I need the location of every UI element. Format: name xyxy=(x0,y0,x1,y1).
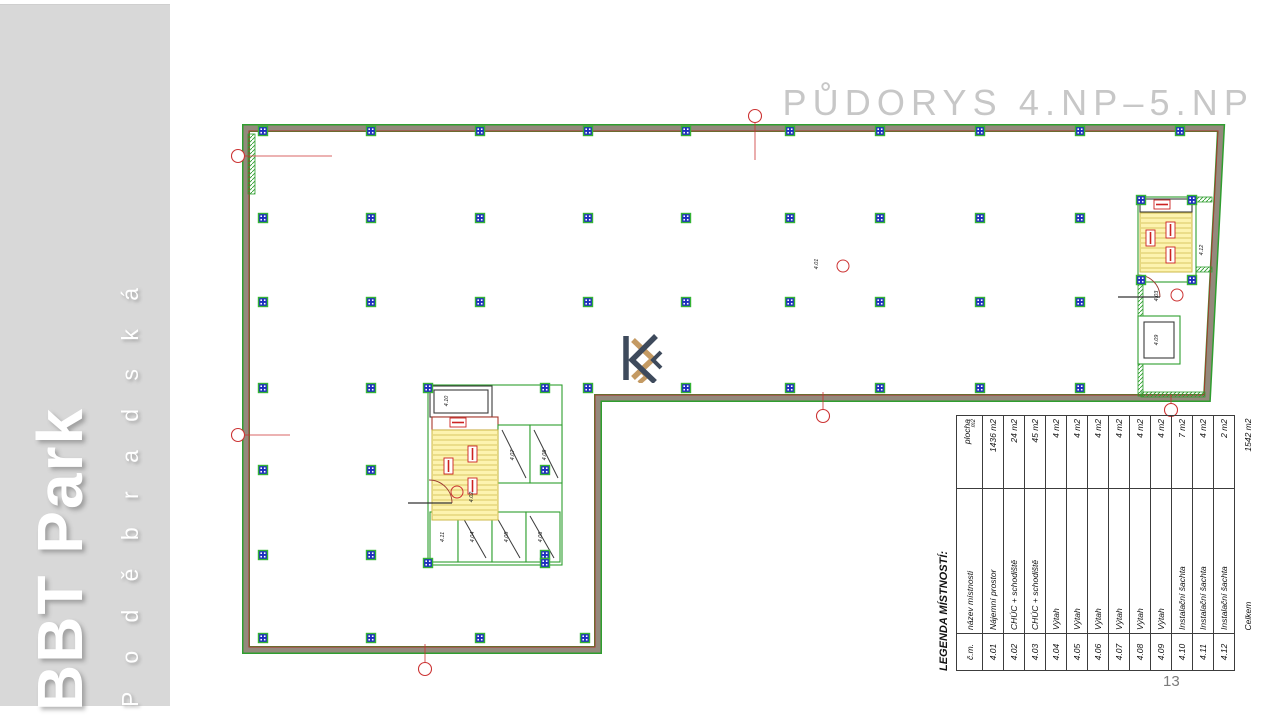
column-hatch-dot xyxy=(546,389,548,391)
column-hatch-dot xyxy=(981,219,983,221)
legend-row: 4.11Instalační šachta4 m2 xyxy=(1193,416,1214,671)
column-hatch-dot xyxy=(264,639,266,641)
column-hatch-dot xyxy=(477,128,479,130)
column-marker xyxy=(682,298,691,307)
legend-cell xyxy=(1235,634,1256,671)
legend-cell: Instalační šachta xyxy=(1214,489,1235,634)
column-hatch-dot xyxy=(881,219,883,221)
column-hatch-dot xyxy=(1077,132,1079,134)
column-hatch-dot xyxy=(477,299,479,301)
column-hatch-dot xyxy=(372,471,374,473)
column-marker xyxy=(259,214,268,223)
column-hatch-dot xyxy=(368,471,370,473)
legend-table-block: LEGENDA MÍSTNOSTÍ: č.m. název místnosti … xyxy=(938,431,1256,671)
column-hatch-dot xyxy=(368,299,370,301)
column-hatch-dot xyxy=(481,299,483,301)
legend-cell: Instalační šachta xyxy=(1193,489,1214,634)
column-hatch-dot xyxy=(1181,132,1183,134)
column-hatch-dot xyxy=(264,471,266,473)
column-hatch-dot xyxy=(881,389,883,391)
column-hatch-dot xyxy=(881,299,883,301)
column-hatch-dot xyxy=(787,132,789,134)
column-hatch-dot xyxy=(1077,128,1079,130)
column-hatch-dot xyxy=(481,215,483,217)
column-hatch-dot xyxy=(368,556,370,558)
room-tag xyxy=(837,260,849,272)
column-hatch-dot xyxy=(542,467,544,469)
legend-cell: 4 m2 xyxy=(1193,416,1214,489)
column-hatch-dot xyxy=(1081,389,1083,391)
column-marker xyxy=(1137,196,1146,205)
column-hatch-dot xyxy=(787,219,789,221)
column-hatch-dot xyxy=(546,560,548,562)
column-hatch-dot xyxy=(582,635,584,637)
column-marker xyxy=(584,298,593,307)
column-hatch-dot xyxy=(981,299,983,301)
legend-cell: 4 m2 xyxy=(1151,416,1172,489)
column-marker xyxy=(976,298,985,307)
legend-cell: 7 m2 xyxy=(1172,416,1193,489)
column-hatch-dot xyxy=(791,389,793,391)
column-hatch-dot xyxy=(981,132,983,134)
column-hatch-dot xyxy=(791,215,793,217)
legend-row: Celkem1542 m2 xyxy=(1235,416,1256,671)
column-hatch-dot xyxy=(542,552,544,554)
column-marker xyxy=(259,384,268,393)
legend-cell: 4 m2 xyxy=(1130,416,1151,489)
column-hatch-dot xyxy=(589,385,591,387)
legend-row: 4.07Výtah4 m2 xyxy=(1109,416,1130,671)
column-hatch-dot xyxy=(481,639,483,641)
axis-marker xyxy=(232,150,245,163)
column-hatch-dot xyxy=(787,215,789,217)
column-hatch-dot xyxy=(683,215,685,217)
column-hatch-dot xyxy=(1142,281,1144,283)
legend-cell: 4.05 xyxy=(1067,634,1088,671)
column-hatch-dot xyxy=(585,385,587,387)
column-hatch-dot xyxy=(260,215,262,217)
column-hatch-dot xyxy=(1081,299,1083,301)
column-marker xyxy=(259,298,268,307)
column-hatch-dot xyxy=(260,552,262,554)
column-hatch-dot xyxy=(787,299,789,301)
column-hatch-dot xyxy=(260,556,262,558)
col-header-name: název místnosti xyxy=(957,489,983,634)
column-hatch-dot xyxy=(477,132,479,134)
column-marker xyxy=(682,214,691,223)
legend-title: LEGENDA MÍSTNOSTÍ: xyxy=(938,431,950,671)
column-hatch-dot xyxy=(977,132,979,134)
column-hatch-dot xyxy=(429,564,431,566)
column-hatch-dot xyxy=(589,303,591,305)
column-hatch-dot xyxy=(481,128,483,130)
legend-cell: 4 m2 xyxy=(1109,416,1130,489)
column-hatch-dot xyxy=(477,215,479,217)
legend-cell: Instalační šachta xyxy=(1172,489,1193,634)
column-hatch-dot xyxy=(981,128,983,130)
axis-marker xyxy=(749,110,762,123)
column-marker xyxy=(367,466,376,475)
axis-marker xyxy=(232,429,245,442)
column-marker xyxy=(1137,276,1146,285)
legend-cell: 4.12 xyxy=(1214,634,1235,671)
column-hatch-dot xyxy=(264,385,266,387)
column-hatch-dot xyxy=(585,389,587,391)
column-hatch-dot xyxy=(977,385,979,387)
column-hatch-dot xyxy=(1189,281,1191,283)
column-hatch-dot xyxy=(368,467,370,469)
legend-cell: 4.10 xyxy=(1172,634,1193,671)
legend-cell: 4.11 xyxy=(1193,634,1214,671)
legend-cell: 45 m2 xyxy=(1025,416,1046,489)
column-hatch-dot xyxy=(260,385,262,387)
column-hatch-dot xyxy=(791,385,793,387)
column-hatch-dot xyxy=(977,389,979,391)
column-hatch-dot xyxy=(791,299,793,301)
column-hatch-dot xyxy=(477,635,479,637)
legend-row: 4.09Výtah4 m2 xyxy=(1151,416,1172,671)
column-hatch-dot xyxy=(877,128,879,130)
column-marker xyxy=(424,384,433,393)
room-number-label: 4.08 xyxy=(542,449,548,461)
legend-cell: Výtah xyxy=(1067,489,1088,634)
column-marker xyxy=(541,559,550,568)
column-hatch-dot xyxy=(981,389,983,391)
column-hatch-dot xyxy=(260,132,262,134)
column-hatch-dot xyxy=(683,132,685,134)
room-number-label: 4.06 xyxy=(538,531,544,543)
column-hatch-dot xyxy=(1077,299,1079,301)
column-hatch-dot xyxy=(1077,389,1079,391)
column-hatch-dot xyxy=(791,219,793,221)
column-hatch-dot xyxy=(368,128,370,130)
col-header-number: č.m. xyxy=(957,634,983,671)
legend-cell: Výtah xyxy=(1088,489,1109,634)
column-hatch-dot xyxy=(1138,197,1140,199)
column-hatch-dot xyxy=(264,215,266,217)
column-hatch-dot xyxy=(368,635,370,637)
column-hatch-dot xyxy=(546,556,548,558)
column-hatch-dot xyxy=(368,552,370,554)
column-hatch-dot xyxy=(977,128,979,130)
legend-cell: CHÚC + schodiště xyxy=(1025,489,1046,634)
legend-cell: 4 m2 xyxy=(1046,416,1067,489)
column-marker xyxy=(424,559,433,568)
column-hatch-dot xyxy=(683,389,685,391)
column-marker xyxy=(976,384,985,393)
column-hatch-dot xyxy=(372,385,374,387)
legend-cell: 4 m2 xyxy=(1067,416,1088,489)
col-header-area: plocha m2 xyxy=(957,416,983,489)
column-hatch-dot xyxy=(260,471,262,473)
column-hatch-dot xyxy=(264,552,266,554)
column-hatch-dot xyxy=(585,132,587,134)
column-hatch-dot xyxy=(787,389,789,391)
column-hatch-dot xyxy=(1177,128,1179,130)
column-hatch-dot xyxy=(264,303,266,305)
column-hatch-dot xyxy=(877,299,879,301)
column-hatch-dot xyxy=(425,560,427,562)
column-hatch-dot xyxy=(981,215,983,217)
legend-cell: Výtah xyxy=(1109,489,1130,634)
legend-row: 4.08Výtah4 m2 xyxy=(1130,416,1151,671)
column-hatch-dot xyxy=(977,219,979,221)
column-marker xyxy=(1076,127,1085,136)
column-hatch-dot xyxy=(589,299,591,301)
legend-cell: 2 m2 xyxy=(1214,416,1235,489)
column-hatch-dot xyxy=(368,215,370,217)
column-hatch-dot xyxy=(368,303,370,305)
column-hatch-dot xyxy=(1081,128,1083,130)
column-hatch-dot xyxy=(1138,201,1140,203)
column-hatch-dot xyxy=(260,299,262,301)
column-hatch-dot xyxy=(1081,132,1083,134)
architect-logo xyxy=(619,333,663,383)
column-hatch-dot xyxy=(264,132,266,134)
column-hatch-dot xyxy=(425,385,427,387)
column-hatch-dot xyxy=(683,128,685,130)
column-hatch-dot xyxy=(264,467,266,469)
column-hatch-dot xyxy=(881,215,883,217)
column-hatch-dot xyxy=(787,385,789,387)
column-hatch-dot xyxy=(260,635,262,637)
column-marker xyxy=(476,214,485,223)
column-hatch-dot xyxy=(481,219,483,221)
column-marker xyxy=(541,384,550,393)
column-hatch-dot xyxy=(368,132,370,134)
column-marker xyxy=(367,551,376,560)
legend-row: 4.06Výtah4 m2 xyxy=(1088,416,1109,671)
column-hatch-dot xyxy=(589,215,591,217)
column-marker xyxy=(541,466,550,475)
column-hatch-dot xyxy=(1077,303,1079,305)
column-hatch-dot xyxy=(589,219,591,221)
hatched-wall xyxy=(248,134,255,194)
column-hatch-dot xyxy=(787,303,789,305)
column-hatch-dot xyxy=(372,635,374,637)
column-hatch-dot xyxy=(546,467,548,469)
column-marker xyxy=(259,466,268,475)
column-hatch-dot xyxy=(877,132,879,134)
room-number-label: 4.01 xyxy=(814,259,820,270)
column-marker xyxy=(1076,384,1085,393)
column-marker xyxy=(476,298,485,307)
room-number-label: 4.10 xyxy=(444,395,450,407)
legend-cell: 4.02 xyxy=(1004,634,1025,671)
column-hatch-dot xyxy=(372,215,374,217)
column-hatch-dot xyxy=(260,639,262,641)
legend-cell: Nájemní prostor xyxy=(983,489,1004,634)
column-marker xyxy=(367,298,376,307)
column-hatch-dot xyxy=(683,303,685,305)
column-hatch-dot xyxy=(546,564,548,566)
column-hatch-dot xyxy=(481,132,483,134)
column-hatch-dot xyxy=(586,635,588,637)
column-hatch-dot xyxy=(687,128,689,130)
column-hatch-dot xyxy=(582,639,584,641)
column-hatch-dot xyxy=(260,219,262,221)
column-hatch-dot xyxy=(429,385,431,387)
column-hatch-dot xyxy=(683,219,685,221)
column-hatch-dot xyxy=(542,385,544,387)
column-marker xyxy=(367,214,376,223)
legend-cell: Výtah xyxy=(1151,489,1172,634)
column-hatch-dot xyxy=(260,467,262,469)
column-hatch-dot xyxy=(881,132,883,134)
column-hatch-dot xyxy=(1077,385,1079,387)
column-marker xyxy=(682,127,691,136)
legend-cell: Celkem xyxy=(1235,489,1256,634)
column-hatch-dot xyxy=(877,389,879,391)
legend-row: 4.05Výtah4 m2 xyxy=(1067,416,1088,671)
column-hatch-dot xyxy=(589,389,591,391)
col-header-area-unit: m2 xyxy=(972,419,977,485)
column-hatch-dot xyxy=(260,389,262,391)
column-hatch-dot xyxy=(589,132,591,134)
hatched-wall xyxy=(1196,197,1212,202)
column-hatch-dot xyxy=(687,215,689,217)
column-marker xyxy=(476,634,485,643)
column-hatch-dot xyxy=(425,389,427,391)
column-marker xyxy=(259,634,268,643)
legend-row: 4.01Nájemní prostor1436 m2 xyxy=(983,416,1004,671)
room-number-label: 4.12 xyxy=(1199,245,1205,256)
column-hatch-dot xyxy=(1138,281,1140,283)
column-hatch-dot xyxy=(687,385,689,387)
room-number-label: 4.04 xyxy=(470,532,476,543)
column-hatch-dot xyxy=(372,556,374,558)
column-marker xyxy=(367,384,376,393)
column-hatch-dot xyxy=(787,128,789,130)
page-number: 13 xyxy=(1163,673,1180,690)
column-hatch-dot xyxy=(368,389,370,391)
column-hatch-dot xyxy=(1181,128,1183,130)
legend-cell: 4.09 xyxy=(1151,634,1172,671)
column-hatch-dot xyxy=(372,299,374,301)
column-marker xyxy=(786,384,795,393)
column-hatch-dot xyxy=(1193,201,1195,203)
room-tag xyxy=(1171,289,1183,301)
column-marker xyxy=(476,127,485,136)
column-marker xyxy=(1076,298,1085,307)
legend-row: 4.02CHÚC + schodiště24 m2 xyxy=(1004,416,1025,671)
column-hatch-dot xyxy=(372,467,374,469)
column-marker xyxy=(786,127,795,136)
column-hatch-dot xyxy=(429,560,431,562)
column-hatch-dot xyxy=(1189,197,1191,199)
column-marker xyxy=(584,127,593,136)
column-hatch-dot xyxy=(1081,215,1083,217)
column-hatch-dot xyxy=(977,303,979,305)
column-hatch-dot xyxy=(477,219,479,221)
column-hatch-dot xyxy=(264,556,266,558)
column-hatch-dot xyxy=(264,219,266,221)
legend-cell: 4.04 xyxy=(1046,634,1067,671)
column-hatch-dot xyxy=(372,552,374,554)
legend-cell: 1542 m2 xyxy=(1235,416,1256,489)
column-marker xyxy=(786,214,795,223)
column-hatch-dot xyxy=(881,128,883,130)
column-hatch-dot xyxy=(372,303,374,305)
column-hatch-dot xyxy=(881,303,883,305)
column-hatch-dot xyxy=(1077,219,1079,221)
legend-cell: 1436 m2 xyxy=(983,416,1004,489)
legend-cell: Výtah xyxy=(1046,489,1067,634)
column-hatch-dot xyxy=(1189,201,1191,203)
column-hatch-dot xyxy=(542,471,544,473)
room-number-label: 4.02 xyxy=(469,492,475,503)
legend-row: 4.12Instalační šachta2 m2 xyxy=(1214,416,1235,671)
room-number-label: 4.03 xyxy=(1154,290,1160,302)
column-hatch-dot xyxy=(260,303,262,305)
column-marker xyxy=(1076,214,1085,223)
column-hatch-dot xyxy=(791,303,793,305)
column-hatch-dot xyxy=(1142,277,1144,279)
column-hatch-dot xyxy=(586,639,588,641)
legend-cell: 4.06 xyxy=(1088,634,1109,671)
column-hatch-dot xyxy=(1077,215,1079,217)
column-hatch-dot xyxy=(687,303,689,305)
column-hatch-dot xyxy=(687,389,689,391)
column-hatch-dot xyxy=(372,128,374,130)
hatched-wall xyxy=(1141,392,1205,397)
column-hatch-dot xyxy=(585,303,587,305)
column-hatch-dot xyxy=(546,471,548,473)
column-marker xyxy=(876,127,885,136)
legend-cell: 4.07 xyxy=(1109,634,1130,671)
column-marker xyxy=(976,214,985,223)
column-hatch-dot xyxy=(1177,132,1179,134)
column-marker xyxy=(976,127,985,136)
legend-row: 4.03CHÚC + schodiště45 m2 xyxy=(1025,416,1046,671)
column-marker xyxy=(1176,127,1185,136)
column-hatch-dot xyxy=(429,389,431,391)
column-hatch-dot xyxy=(372,389,374,391)
column-hatch-dot xyxy=(687,219,689,221)
column-hatch-dot xyxy=(368,639,370,641)
column-hatch-dot xyxy=(585,219,587,221)
column-hatch-dot xyxy=(687,132,689,134)
legend-table: č.m. název místnosti plocha m2 4.01Nájem… xyxy=(956,415,1256,671)
column-hatch-dot xyxy=(791,132,793,134)
room-number-label: 4.09 xyxy=(1154,335,1160,346)
column-hatch-dot xyxy=(981,385,983,387)
core-room xyxy=(434,390,488,413)
column-marker xyxy=(584,214,593,223)
column-hatch-dot xyxy=(1189,277,1191,279)
column-hatch-dot xyxy=(791,128,793,130)
column-hatch-dot xyxy=(260,128,262,130)
room-number-label: 4.11 xyxy=(440,532,446,542)
column-hatch-dot xyxy=(977,299,979,301)
legend-cell: 4.01 xyxy=(983,634,1004,671)
column-hatch-dot xyxy=(542,556,544,558)
column-marker xyxy=(876,214,885,223)
legend-row: 4.10Instalační šachta7 m2 xyxy=(1172,416,1193,671)
column-hatch-dot xyxy=(542,389,544,391)
column-hatch-dot xyxy=(542,560,544,562)
room-number-label: 4.07 xyxy=(510,449,516,461)
column-marker xyxy=(367,127,376,136)
column-hatch-dot xyxy=(481,303,483,305)
column-hatch-dot xyxy=(877,303,879,305)
column-hatch-dot xyxy=(1193,197,1195,199)
column-hatch-dot xyxy=(372,132,374,134)
column-marker xyxy=(367,634,376,643)
column-hatch-dot xyxy=(683,299,685,301)
axis-marker xyxy=(817,410,830,423)
column-hatch-dot xyxy=(477,639,479,641)
